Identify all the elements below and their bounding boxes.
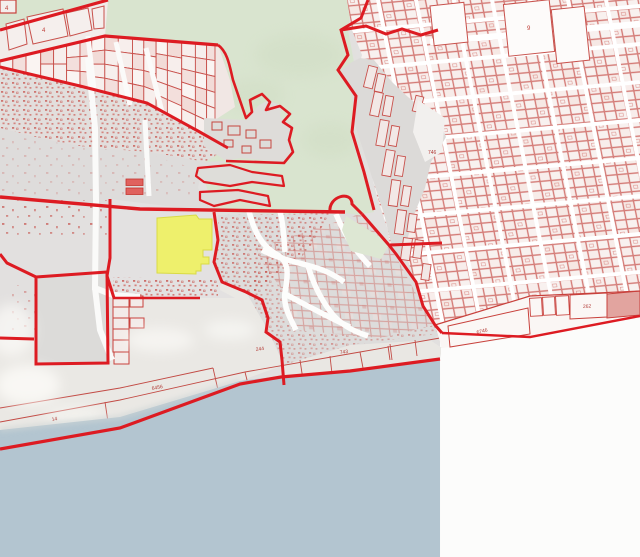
svg-text:743: 743 [339, 349, 348, 356]
svg-text:244: 244 [255, 346, 264, 353]
svg-text:746: 746 [428, 150, 437, 156]
svg-text:262: 262 [583, 304, 592, 310]
